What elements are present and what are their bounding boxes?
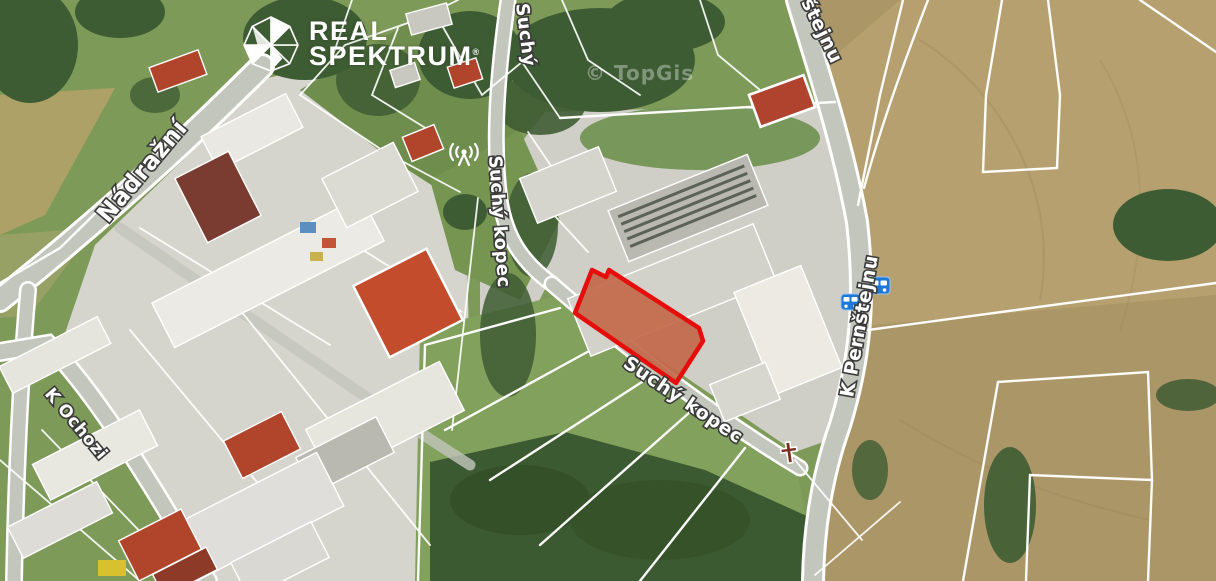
- aerial-map-image[interactable]: Nádražní Suchý Suchý kopec Suchý kopec K…: [0, 0, 1216, 581]
- logo-line2: SPEKTRUM®: [309, 44, 479, 69]
- map-canvas[interactable]: Nádražní Suchý Suchý kopec Suchý kopec K…: [0, 0, 1216, 581]
- registered-mark: ®: [473, 47, 480, 57]
- realspektrum-logo-text: REAL SPEKTRUM®: [309, 19, 479, 69]
- realspektrum-faceted-gem-icon: [243, 16, 299, 72]
- realspektrum-logo: REAL SPEKTRUM®: [243, 16, 479, 72]
- map-provider-watermark: © TopGis: [585, 61, 694, 85]
